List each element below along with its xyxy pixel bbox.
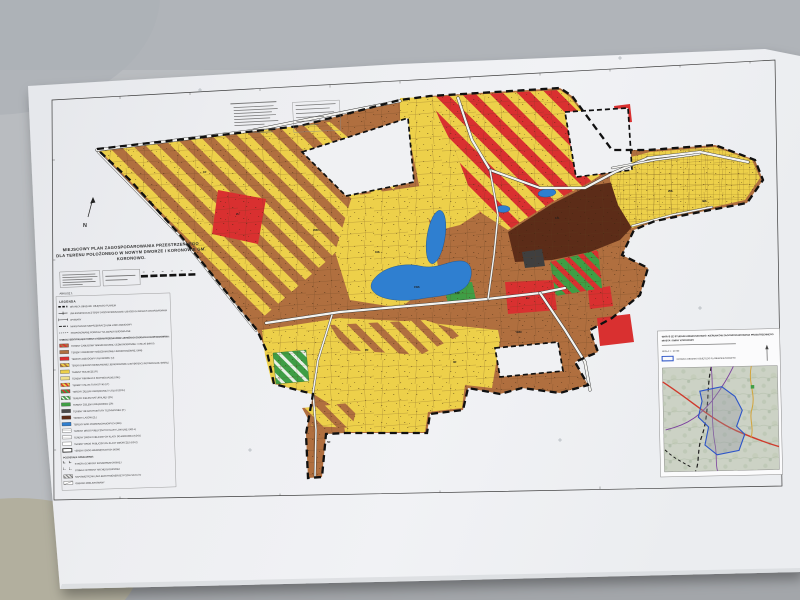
inset-map: WYRYS ZE STUDIUM UWARUNKOWAŃ I KIERUNKÓW… (658, 328, 783, 477)
parcel-label: 1ZL (555, 216, 560, 220)
parcel-label: 1R (203, 170, 206, 174)
parcel-label: 2MN (313, 228, 319, 232)
photo-of-zoning-plan: 2U 1R 2MN 1ML 1WS 1ZP 1U 1ZL 2R 3R 4MN 2… (0, 0, 800, 600)
parcel-label: 1WS (414, 285, 420, 289)
legend-header: LEGENDA (59, 299, 76, 304)
inset-green-area (751, 385, 755, 389)
parcel-label: 2ML (668, 189, 674, 193)
inset-topo-map (662, 366, 779, 472)
parcel-label: 2U (236, 212, 239, 216)
parcel-label: 3ML (702, 199, 708, 203)
parcel-label: 1ML (375, 250, 381, 254)
parcel-label: 5R (327, 440, 330, 444)
north-label: N (83, 223, 87, 229)
svg-text:WYMIARY: WYMIARY (70, 318, 82, 321)
parcel-label: 2R (365, 348, 368, 352)
parcel-label: 3R (453, 360, 456, 364)
parcel-label: 1ZP (455, 291, 460, 295)
parcel-label: 1U (526, 296, 529, 300)
parcel-label: 4MN (516, 330, 522, 334)
sheet-number: ARKUSZ 1 (59, 291, 73, 295)
inset-scale: SKALA 1 : 10 000 (662, 350, 680, 353)
